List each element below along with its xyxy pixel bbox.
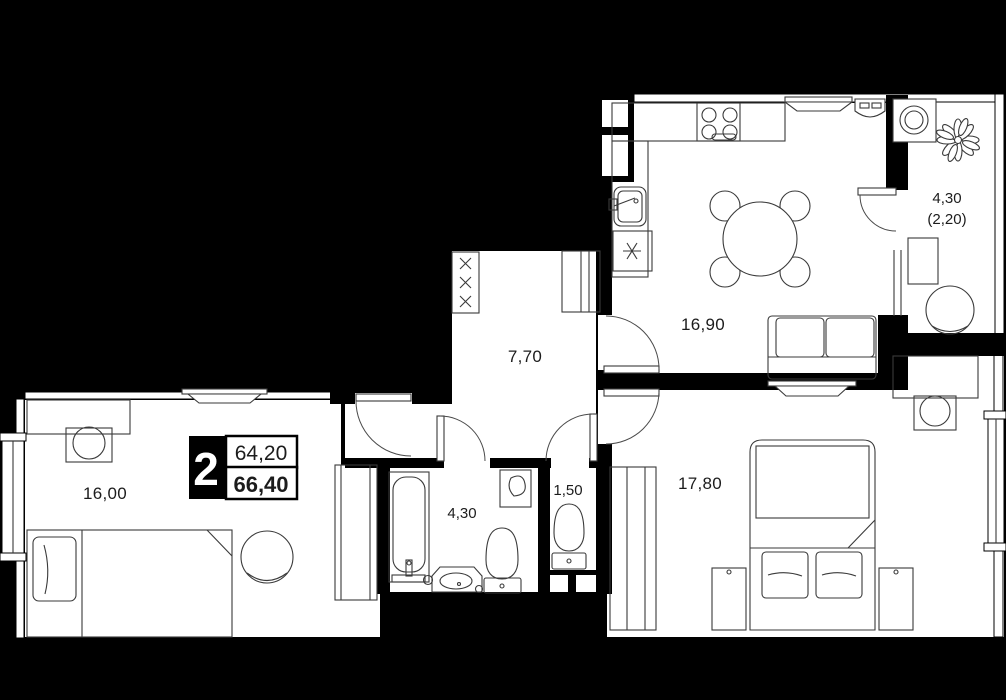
bathroom-area-label: 4,30	[447, 505, 476, 522]
balcony-glazing	[995, 94, 1004, 352]
room-left-top-wall	[25, 392, 333, 399]
kitchen-appliance	[855, 99, 885, 117]
bathroom-floor	[387, 467, 540, 592]
floor-plan-page: 16,90 4,30 (2,20) 7,70 16,00 4,30 1,50 1…	[0, 0, 1006, 700]
wc-area-label: 1,50	[553, 482, 582, 499]
floor-plan: 16,90 4,30 (2,20) 7,70 16,00 4,30 1,50 1…	[0, 0, 1006, 700]
bedroom-opening	[598, 390, 612, 444]
balcony-area-label: 4,30	[932, 190, 961, 207]
bedroom-area-label: 17,80	[678, 474, 722, 493]
bathroom-opening	[444, 458, 490, 468]
hallway-area-label: 7,70	[508, 347, 542, 366]
dining-set	[710, 191, 810, 287]
apartment-badge: 2 64,20 66,40	[189, 436, 297, 499]
window-left	[0, 433, 26, 561]
wc-bottom-wall	[548, 570, 598, 575]
wc-opening	[551, 458, 589, 468]
balcony-floor-end-wall	[886, 333, 1004, 356]
living-opening	[598, 315, 612, 370]
entrance-block	[330, 237, 452, 404]
dining-table	[723, 202, 797, 276]
washing-machine	[893, 99, 936, 142]
duct-box	[602, 100, 628, 127]
shaft-box	[576, 574, 596, 592]
room-left-floor	[25, 400, 380, 637]
room-left-area-label: 16,00	[83, 484, 127, 503]
balcony-area-secondary-label: (2,20)	[927, 211, 966, 228]
bathroom-left-wall	[377, 462, 390, 594]
badge-area-top: 64,20	[235, 442, 288, 465]
tv	[785, 97, 852, 111]
badge-area-bottom: 66,40	[233, 472, 288, 497]
living-area-label: 16,90	[681, 315, 725, 334]
hallway-top-wall	[445, 240, 600, 251]
badge-room-count: 2	[193, 443, 219, 495]
